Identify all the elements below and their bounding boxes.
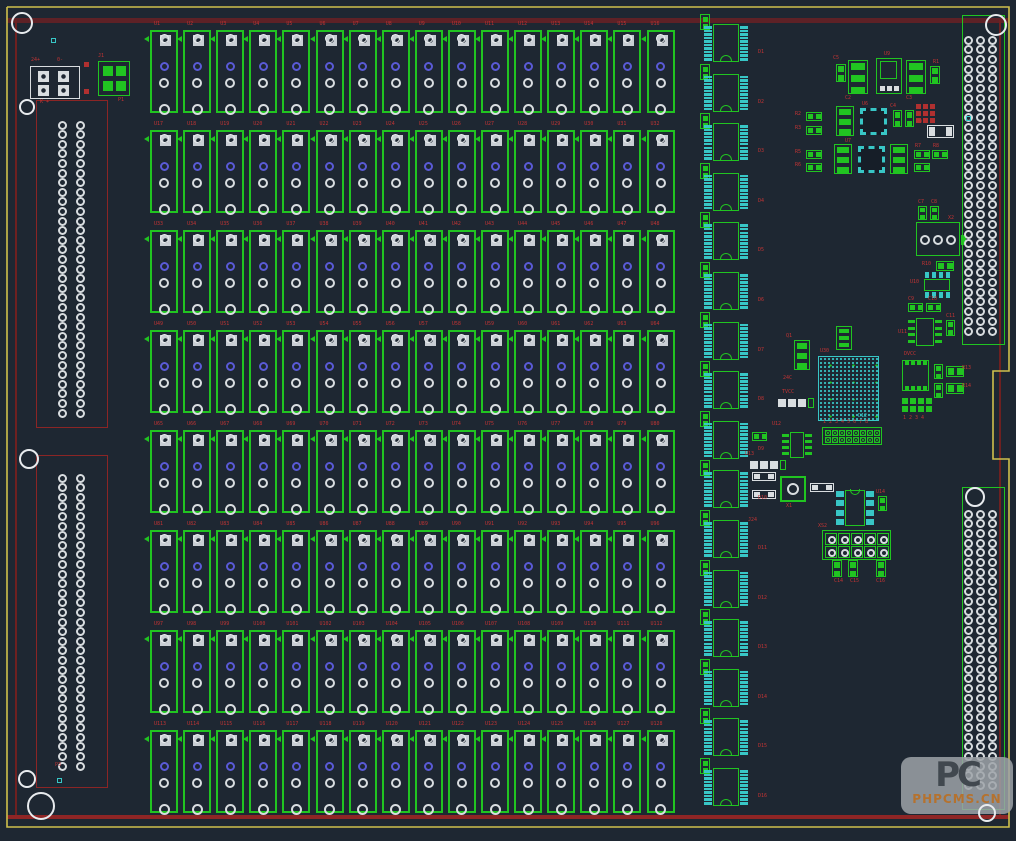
- pad: [851, 533, 863, 545]
- relay-footprint[interactable]: [613, 130, 641, 213]
- relay-footprint[interactable]: [382, 530, 410, 613]
- regulator-footprint[interactable]: [876, 58, 902, 94]
- relay-footprint[interactable]: [647, 30, 675, 113]
- pad: [928, 305, 933, 310]
- relay-footprint[interactable]: [316, 30, 344, 113]
- relay-footprint[interactable]: [580, 530, 608, 613]
- pad-hole: [623, 134, 632, 143]
- capacitor-footprint[interactable]: [832, 560, 842, 577]
- ic-notch: [720, 700, 732, 707]
- pad-hole: [358, 278, 368, 288]
- ic-footprint[interactable]: [700, 14, 762, 64]
- relay-footprint[interactable]: [249, 130, 277, 213]
- ic-notch: [720, 551, 732, 558]
- pad-hole: [292, 134, 301, 143]
- pin1-arrow-icon: [343, 436, 348, 442]
- relay-footprint[interactable]: [613, 430, 641, 513]
- relay-footprint[interactable]: [216, 30, 244, 113]
- relay-footprint[interactable]: [415, 230, 443, 313]
- relay-footprint[interactable]: [647, 630, 675, 713]
- connector-pin-pad: [76, 560, 85, 569]
- relay-footprint[interactable]: [216, 130, 244, 213]
- pad-hole: [589, 278, 599, 288]
- qfn-footprint[interactable]: [860, 108, 887, 135]
- relay-footprint[interactable]: [415, 130, 443, 213]
- relay-footprint[interactable]: [481, 130, 509, 213]
- resistor-footprint[interactable]: [914, 163, 930, 172]
- relay-footprint[interactable]: [547, 630, 575, 713]
- ic-pad: [740, 246, 748, 249]
- relay-footprint[interactable]: [216, 430, 244, 513]
- sot23-footprint[interactable]: [848, 60, 868, 94]
- relay-footprint[interactable]: [249, 730, 277, 813]
- relay-footprint[interactable]: [415, 430, 443, 513]
- relay-footprint[interactable]: [448, 730, 476, 813]
- relay-footprint[interactable]: [382, 230, 410, 313]
- pad-hole: [556, 278, 566, 288]
- relay-footprint[interactable]: [448, 630, 476, 713]
- relay-footprint[interactable]: [647, 130, 675, 213]
- relay-footprint[interactable]: [448, 130, 476, 213]
- relay-ref-label: U60: [518, 322, 527, 327]
- relay-footprint[interactable]: [382, 130, 410, 213]
- relay-footprint[interactable]: [448, 230, 476, 313]
- relay-footprint[interactable]: [514, 330, 542, 413]
- relay-footprint[interactable]: [382, 430, 410, 513]
- relay-footprint[interactable]: [316, 730, 344, 813]
- ic-pad: [704, 749, 712, 752]
- relay-footprint[interactable]: [481, 330, 509, 413]
- capacitor-footprint[interactable]: [946, 320, 955, 336]
- relay-footprint[interactable]: [514, 230, 542, 313]
- via-blue: [557, 662, 566, 671]
- relay-ref-label: U80: [651, 422, 660, 427]
- via-blue: [292, 762, 301, 771]
- ref-label: 24+: [31, 58, 40, 63]
- connector-pin-pad: [76, 140, 85, 149]
- via-blue: [259, 762, 268, 771]
- relay-footprint[interactable]: [547, 730, 575, 813]
- relay-footprint[interactable]: [249, 630, 277, 713]
- connector-pin-pad: [58, 627, 67, 636]
- via-blue: [292, 362, 301, 371]
- ic-footprint[interactable]: [700, 708, 762, 758]
- relay-footprint[interactable]: [316, 630, 344, 713]
- relay-footprint[interactable]: [349, 30, 377, 113]
- connector-pin-pad: [976, 171, 985, 180]
- relay-footprint[interactable]: [415, 330, 443, 413]
- pad-hole: [557, 334, 566, 343]
- relay-footprint[interactable]: [216, 530, 244, 613]
- relay-footprint[interactable]: [282, 530, 310, 613]
- relay-footprint[interactable]: [481, 630, 509, 713]
- relay-footprint[interactable]: [150, 430, 178, 513]
- pad-hole: [160, 734, 169, 743]
- relay-footprint[interactable]: [183, 330, 211, 413]
- resistor-footprint[interactable]: [806, 126, 822, 135]
- connector-pin-pad: [976, 45, 985, 54]
- ic-pad: [740, 795, 748, 798]
- power-terminal-footprint[interactable]: [30, 66, 80, 99]
- sot23-footprint[interactable]: [906, 60, 926, 94]
- connector-pin-pad: [988, 655, 997, 664]
- ic-pad: [740, 175, 748, 178]
- via-blue: [358, 762, 367, 771]
- relay-footprint[interactable]: [580, 730, 608, 813]
- relay-footprint[interactable]: [547, 530, 575, 613]
- qfn-footprint[interactable]: [902, 360, 929, 391]
- relay-footprint[interactable]: [249, 530, 277, 613]
- relay-footprint[interactable]: [150, 730, 178, 813]
- capacitor-footprint[interactable]: [934, 383, 943, 398]
- connector-pin-pad: [76, 370, 85, 379]
- relay-footprint[interactable]: [647, 330, 675, 413]
- relay-footprint[interactable]: [150, 630, 178, 713]
- pin-header-footprint[interactable]: [822, 427, 882, 445]
- pad-hole: [258, 604, 269, 615]
- relay-footprint[interactable]: [349, 730, 377, 813]
- relay-footprint[interactable]: [481, 230, 509, 313]
- qfn-footprint[interactable]: [858, 146, 885, 173]
- relay-footprint[interactable]: [580, 430, 608, 513]
- via-blue: [226, 562, 235, 571]
- ic-pad: [704, 37, 712, 40]
- via-blue: [623, 762, 632, 771]
- capacitor-footprint[interactable]: [848, 560, 858, 577]
- relay-footprint[interactable]: [547, 30, 575, 113]
- resistor-footprint[interactable]: [752, 472, 776, 481]
- pad-hole: [622, 304, 633, 315]
- pad-hole: [457, 278, 467, 288]
- pad-hole: [423, 204, 434, 215]
- relay-footprint[interactable]: [249, 430, 277, 513]
- connector-pin-pad: [964, 230, 973, 239]
- relay-footprint[interactable]: [282, 330, 310, 413]
- bga-footprint[interactable]: [818, 356, 879, 421]
- relay-footprint[interactable]: [282, 430, 310, 513]
- jumper-footprint[interactable]: [98, 61, 130, 96]
- relay-footprint[interactable]: [481, 30, 509, 113]
- resistor-footprint[interactable]: [806, 163, 822, 172]
- connector-pin-pad: [76, 637, 85, 646]
- relay-footprint[interactable]: [547, 330, 575, 413]
- relay-footprint[interactable]: [514, 630, 542, 713]
- relay-footprint[interactable]: [150, 530, 178, 613]
- relay-ref-label: U28: [518, 122, 527, 127]
- resistor-footprint[interactable]: [806, 150, 822, 159]
- ic-ref-label: D15: [758, 744, 767, 749]
- relay-footprint[interactable]: [448, 430, 476, 513]
- pad-hole: [291, 78, 301, 88]
- relay-footprint[interactable]: [448, 30, 476, 113]
- relay-footprint[interactable]: [150, 230, 178, 313]
- ic-pad: [704, 150, 712, 153]
- connector-pin-pad: [58, 341, 67, 350]
- resistor-footprint[interactable]: [914, 150, 930, 159]
- connector-left-bottom[interactable]: [36, 455, 108, 788]
- ic-footprint[interactable]: [700, 312, 762, 362]
- resistor-footprint[interactable]: [936, 261, 954, 271]
- resistor-footprint[interactable]: [926, 303, 941, 312]
- soic-footprint[interactable]: [782, 430, 812, 460]
- relay-footprint[interactable]: [647, 430, 675, 513]
- ic-pad: [704, 596, 712, 599]
- relay-footprint[interactable]: [580, 330, 608, 413]
- ic-footprint[interactable]: [700, 64, 762, 114]
- capacitor-footprint[interactable]: [878, 496, 887, 511]
- ic-pad: [740, 774, 748, 777]
- relay-footprint[interactable]: [613, 330, 641, 413]
- connector-pin-pad: [976, 200, 985, 209]
- relay-footprint[interactable]: [580, 130, 608, 213]
- via-blue: [590, 162, 599, 171]
- connector-pin-pad: [58, 752, 67, 761]
- resistor-footprint[interactable]: [806, 112, 822, 121]
- pin-header-footprint[interactable]: [822, 530, 891, 560]
- pin1-arrow-icon: [376, 136, 381, 142]
- ic-footprint[interactable]: [700, 113, 762, 163]
- relay-ref-label: U108: [518, 622, 530, 627]
- relay-footprint[interactable]: [448, 330, 476, 413]
- capacitor-footprint[interactable]: [893, 110, 902, 127]
- ic-footprint[interactable]: [700, 163, 762, 213]
- sot23-footprint[interactable]: [794, 340, 810, 370]
- ic-pad: [704, 802, 712, 805]
- pad-hole: [655, 604, 666, 615]
- pad: [939, 272, 943, 278]
- relay-footprint[interactable]: [613, 230, 641, 313]
- relay-footprint[interactable]: [415, 630, 443, 713]
- relay-ref-label: U63: [617, 322, 626, 327]
- ic-pad: [740, 356, 748, 359]
- relay-footprint[interactable]: [282, 630, 310, 713]
- soic-footprint[interactable]: [908, 316, 942, 348]
- relay-footprint[interactable]: [183, 730, 211, 813]
- pad-hole: [325, 634, 334, 643]
- dip-socket-footprint[interactable]: [836, 489, 874, 527]
- capacitor-footprint[interactable]: [930, 206, 939, 220]
- pin1-arrow-icon: [574, 636, 579, 642]
- ic-pad: [740, 139, 748, 142]
- relay-footprint[interactable]: [349, 230, 377, 313]
- relay-footprint[interactable]: [150, 30, 178, 113]
- relay-footprint[interactable]: [282, 230, 310, 313]
- relay-footprint[interactable]: [547, 430, 575, 513]
- relay-footprint[interactable]: [216, 330, 244, 413]
- ic-pad: [704, 402, 712, 405]
- pad-hole: [258, 404, 269, 415]
- connector-pin-pad: [976, 577, 985, 586]
- relay-footprint[interactable]: [613, 530, 641, 613]
- relay-footprint[interactable]: [216, 230, 244, 313]
- relay-footprint[interactable]: [514, 430, 542, 513]
- capacitor-footprint[interactable]: [836, 64, 846, 82]
- terminal-block-footprint[interactable]: [916, 222, 960, 256]
- relay-footprint[interactable]: [216, 730, 244, 813]
- relay-footprint[interactable]: [613, 730, 641, 813]
- ic-pad: [740, 182, 748, 185]
- relay-footprint[interactable]: [647, 230, 675, 313]
- sot23-footprint[interactable]: [836, 326, 852, 350]
- connector-pin-pad: [76, 130, 85, 139]
- ic-pad: [704, 621, 712, 624]
- pad: [905, 360, 909, 365]
- relay-footprint[interactable]: [183, 30, 211, 113]
- resistor-footprint[interactable]: [932, 150, 948, 159]
- relay-footprint[interactable]: [249, 330, 277, 413]
- capacitor-footprint[interactable]: [934, 364, 943, 379]
- relay-footprint[interactable]: [481, 730, 509, 813]
- pad-row-footprint[interactable]: [750, 458, 784, 473]
- pin1-arrow-icon: [243, 436, 248, 442]
- soic-footprint[interactable]: [922, 272, 952, 298]
- connector-pin-pad: [988, 162, 997, 171]
- pad-hole: [258, 778, 268, 788]
- relay-footprint[interactable]: [282, 730, 310, 813]
- pad-hole: [490, 578, 500, 588]
- relay-footprint[interactable]: [282, 130, 310, 213]
- via-blue: [457, 362, 466, 371]
- ic-pad: [740, 377, 748, 380]
- relay-footprint[interactable]: [580, 230, 608, 313]
- ic-footprint[interactable]: [700, 560, 762, 610]
- connector-pin-pad: [964, 548, 973, 557]
- relay-footprint[interactable]: [183, 130, 211, 213]
- relay-footprint[interactable]: [316, 330, 344, 413]
- pad-hole: [655, 704, 666, 715]
- relay-footprint[interactable]: [382, 330, 410, 413]
- relay-footprint[interactable]: [514, 530, 542, 613]
- relay-footprint[interactable]: [183, 230, 211, 313]
- relay-footprint[interactable]: [547, 130, 575, 213]
- relay-footprint[interactable]: [316, 430, 344, 513]
- relay-footprint[interactable]: [183, 530, 211, 613]
- pin-hole: [867, 536, 875, 544]
- relay-footprint[interactable]: [349, 330, 377, 413]
- pad-hole: [656, 678, 666, 688]
- ic-pad: [704, 696, 712, 699]
- relay-footprint[interactable]: [382, 630, 410, 713]
- capacitor-footprint[interactable]: [876, 560, 886, 577]
- via-blue: [457, 62, 466, 71]
- capacitor-footprint[interactable]: [918, 206, 927, 220]
- pad-hole: [589, 678, 599, 688]
- relay-footprint[interactable]: [613, 630, 641, 713]
- mounting-hole: [965, 487, 985, 507]
- pad-hole: [456, 604, 467, 615]
- ic-pad: [740, 699, 748, 702]
- pad-hole: [193, 734, 202, 743]
- pad-hole: [423, 704, 434, 715]
- ic-footprint[interactable]: [700, 659, 762, 709]
- relay-footprint[interactable]: [183, 430, 211, 513]
- ic-footprint[interactable]: [700, 262, 762, 312]
- relay-footprint[interactable]: [580, 630, 608, 713]
- resistor-footprint[interactable]: [752, 432, 767, 441]
- ic-pad: [704, 324, 712, 327]
- resistor-footprint[interactable]: [927, 125, 954, 138]
- ic-footprint[interactable]: [700, 361, 762, 411]
- pad-hole: [358, 178, 368, 188]
- relay-footprint[interactable]: [249, 30, 277, 113]
- relay-footprint[interactable]: [349, 630, 377, 713]
- pad: [907, 112, 912, 118]
- pad-hole: [291, 704, 302, 715]
- relay-footprint[interactable]: [415, 30, 443, 113]
- connector-pin-pad: [76, 762, 85, 771]
- relay-footprint[interactable]: [514, 730, 542, 813]
- resistor-footprint[interactable]: [810, 483, 834, 492]
- sot23-footprint[interactable]: [836, 106, 854, 136]
- relay-footprint[interactable]: [183, 630, 211, 713]
- pad-hole: [490, 804, 501, 815]
- ref-label: X1: [786, 504, 792, 509]
- relay-footprint[interactable]: [415, 730, 443, 813]
- ic-footprint[interactable]: [700, 212, 762, 262]
- crystal-footprint[interactable]: [780, 476, 806, 502]
- relay-footprint[interactable]: [349, 130, 377, 213]
- pin1-arrow-icon: [442, 36, 447, 42]
- pad-row-footprint[interactable]: [778, 396, 812, 413]
- relay-footprint[interactable]: [448, 530, 476, 613]
- relay-footprint[interactable]: [481, 530, 509, 613]
- relay-footprint[interactable]: [514, 130, 542, 213]
- relay-footprint[interactable]: [249, 230, 277, 313]
- ic-footprint[interactable]: [700, 758, 762, 808]
- relay-footprint[interactable]: [514, 30, 542, 113]
- relay-footprint[interactable]: [349, 530, 377, 613]
- sot23-footprint[interactable]: [834, 144, 852, 174]
- relay-footprint[interactable]: [580, 30, 608, 113]
- relay-footprint[interactable]: [382, 730, 410, 813]
- ic-footprint[interactable]: [700, 609, 762, 659]
- resistor-footprint[interactable]: [908, 303, 923, 312]
- pad: [866, 519, 874, 525]
- connector-left-top[interactable]: [36, 100, 108, 428]
- cap-pad: [703, 364, 708, 369]
- relay-footprint[interactable]: [647, 530, 675, 613]
- pin1-arrow-icon: [475, 336, 480, 342]
- pin1-arrow-icon: [343, 636, 348, 642]
- relay-footprint[interactable]: [316, 130, 344, 213]
- relay-footprint[interactable]: [216, 630, 244, 713]
- relay-footprint[interactable]: [349, 430, 377, 513]
- capacitor-footprint[interactable]: [930, 66, 940, 84]
- relay-footprint[interactable]: [150, 330, 178, 413]
- pad-grid[interactable]: [902, 398, 934, 414]
- capacitor-footprint[interactable]: [905, 110, 914, 127]
- sot23-footprint[interactable]: [890, 144, 908, 174]
- ic-pad: [740, 196, 748, 199]
- relay-footprint[interactable]: [415, 530, 443, 613]
- relay-footprint[interactable]: [316, 230, 344, 313]
- pad-hole: [491, 334, 500, 343]
- relay-ref-label: U57: [419, 322, 428, 327]
- relay-footprint[interactable]: [382, 30, 410, 113]
- ic-ref-label: D4: [758, 199, 764, 204]
- relay-footprint[interactable]: [150, 130, 178, 213]
- relay-footprint[interactable]: [547, 230, 575, 313]
- via-blue: [193, 462, 202, 471]
- connector-pin-pad: [988, 558, 997, 567]
- relay-footprint[interactable]: [647, 730, 675, 813]
- relay-footprint[interactable]: [316, 530, 344, 613]
- pad-hole: [192, 304, 203, 315]
- pad-hole: [324, 404, 335, 415]
- relay-footprint[interactable]: [613, 30, 641, 113]
- relay-footprint[interactable]: [481, 430, 509, 513]
- relay-footprint[interactable]: [282, 30, 310, 113]
